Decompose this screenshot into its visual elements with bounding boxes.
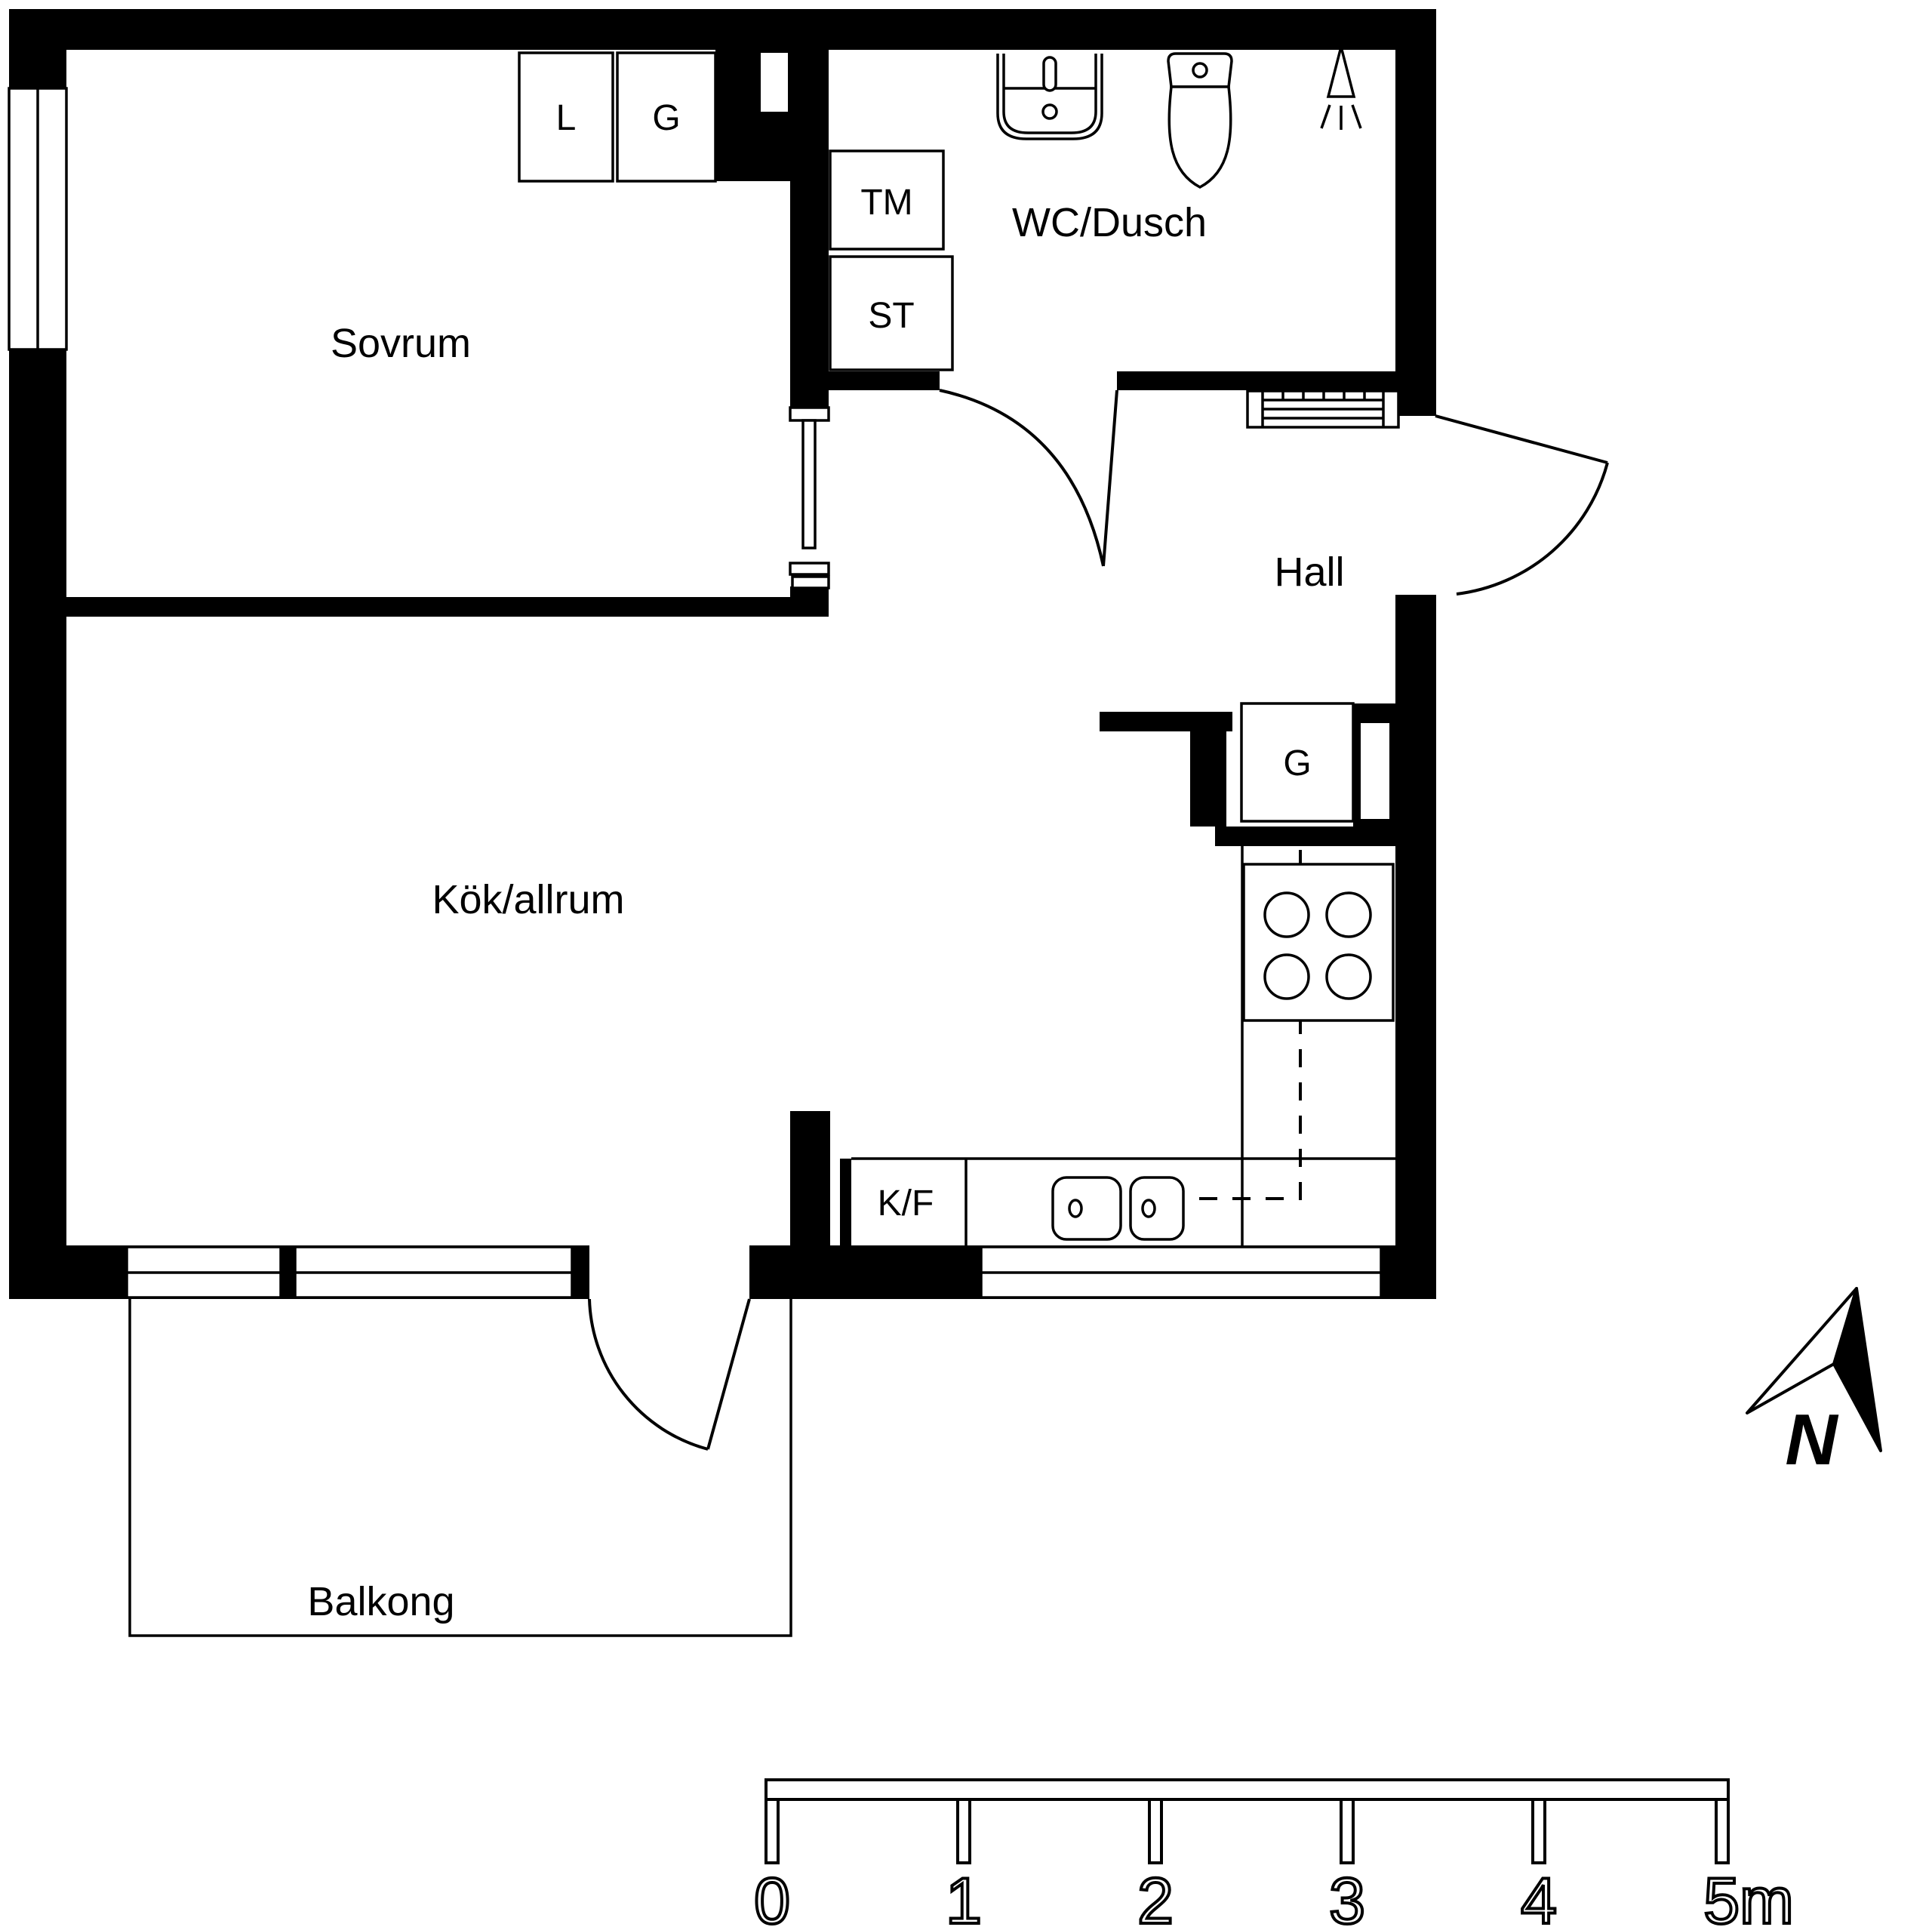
balcony-outline xyxy=(130,1299,791,1636)
toilet xyxy=(1168,54,1232,187)
sliding-door-bedroom xyxy=(790,408,829,588)
scale-5m: 5m xyxy=(1703,1865,1793,1927)
radiator xyxy=(1247,391,1398,427)
bathroom-sink xyxy=(998,54,1102,139)
st-label: ST xyxy=(868,296,914,336)
windows xyxy=(9,88,1381,1301)
shower-icon xyxy=(1321,47,1361,130)
scale-3: 3 xyxy=(1329,1865,1365,1927)
scale-4: 4 xyxy=(1521,1865,1557,1927)
scale-0: 0 xyxy=(754,1865,790,1927)
closet-g-label: G xyxy=(652,98,680,138)
cleaning-closet-box: ST xyxy=(830,257,952,370)
window-left xyxy=(9,88,66,349)
scale-1: 1 xyxy=(946,1865,982,1927)
closet-l-label: L xyxy=(556,98,577,138)
balcony-window-b xyxy=(295,1247,572,1297)
scale-bar: 0 1 2 3 4 5m xyxy=(754,1780,1794,1927)
room-label-kok-allrum: Kök/allrum xyxy=(432,877,624,922)
scale-2: 2 xyxy=(1137,1865,1174,1927)
kitchen-g-label: G xyxy=(1283,743,1311,783)
stove xyxy=(1244,864,1393,1020)
washing-machine-box: TM xyxy=(830,151,943,249)
kitchen-window xyxy=(981,1247,1381,1297)
tm-label: TM xyxy=(860,183,912,223)
kitchen-sink xyxy=(1053,1177,1183,1239)
entrance-door xyxy=(1435,416,1607,594)
wc-door xyxy=(940,390,1117,566)
kf-label: K/F xyxy=(878,1184,934,1224)
kitchen-closet-g-box: G xyxy=(1241,703,1353,821)
floor-plan: L G TM ST xyxy=(0,0,1932,1927)
balcony-window-a xyxy=(127,1247,281,1297)
north-arrow-icon: N xyxy=(1747,1288,1881,1480)
room-label-balkong: Balkong xyxy=(307,1579,454,1624)
north-label: N xyxy=(1785,1399,1838,1480)
room-label-hall: Hall xyxy=(1274,549,1344,595)
balcony-door xyxy=(589,1299,749,1449)
room-label-sovrum: Sovrum xyxy=(331,321,471,366)
bedroom-closets: L G xyxy=(519,53,715,181)
walls xyxy=(9,9,1436,1299)
room-label-wc-dusch: WC/Dusch xyxy=(1012,200,1207,245)
balcony-door-opening xyxy=(589,1244,749,1301)
